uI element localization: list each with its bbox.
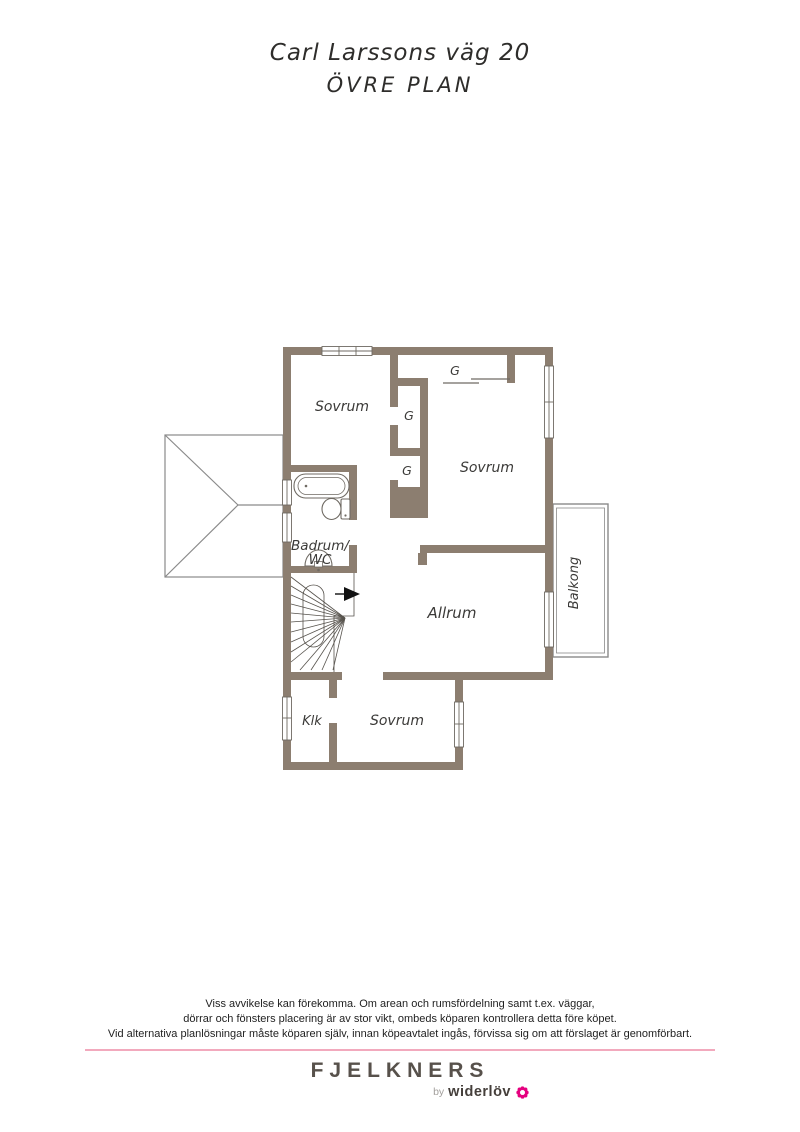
window-sovrum-bottom — [455, 702, 464, 747]
roof-rect — [165, 435, 283, 577]
stair-direction-arrow — [335, 587, 360, 601]
wall-stair-bottom — [283, 672, 342, 680]
pink-divider-rule — [85, 1049, 715, 1051]
sliding-closet-doors — [443, 379, 510, 383]
wall-klk-divider-upper — [329, 680, 337, 698]
closet-label-g2: G — [404, 408, 414, 423]
room-label-klk: Klk — [302, 714, 322, 729]
wall-exterior-bottom — [283, 762, 463, 770]
balcony-door — [545, 592, 554, 647]
wall-klk-divider-lower — [329, 723, 337, 762]
brand-name: FJELKNERS — [311, 1059, 490, 1083]
disclaimer-line-3: Vid alternativa planlösningar måste köpa… — [0, 1027, 800, 1042]
closet-label-g1: G — [450, 363, 460, 378]
widerlov-flower-icon — [515, 1085, 530, 1100]
room-label-balkong: Balkong — [567, 557, 582, 609]
byline-brand: widerlöv — [448, 1084, 511, 1100]
bathtub — [294, 474, 349, 498]
floor-plan: Sovrum Sovrum Allrum Sovrum Klk Badrum/ … — [0, 0, 800, 1132]
chimney-block — [390, 487, 425, 518]
room-label-sovrum-top-right: Sovrum — [460, 460, 514, 476]
window-badrum-upper — [283, 480, 292, 505]
wall-closet-right — [420, 382, 428, 518]
disclaimer-line-1: Viss avvikelse kan förekomma. Om arean o… — [0, 997, 800, 1012]
room-label-sovrum-bottom: Sovrum — [370, 713, 424, 729]
wall-closet-top-stub — [395, 378, 428, 386]
byline-prefix: by — [433, 1086, 444, 1098]
broker-logo: FJELKNERS by widerlöv — [0, 1059, 800, 1100]
closet-label-g3: G — [402, 463, 412, 478]
room-label-allrum: Allrum — [427, 604, 477, 622]
roof-outline — [165, 435, 283, 577]
wall-allrum-bottom — [383, 672, 553, 680]
brand-byline: by widerlöv — [354, 1084, 530, 1100]
wall-closet-left-c — [390, 480, 398, 487]
wall-closet-mid-stub — [390, 448, 420, 456]
stair-treads — [291, 577, 345, 670]
window-right-sovrum — [545, 366, 554, 438]
page: Carl Larssons väg 20 ÖVRE PLAN — [0, 0, 800, 1132]
room-label-sovrum-top-left: Sovrum — [315, 399, 369, 415]
wall-sovrum-allrum-divider — [420, 545, 545, 553]
disclaimer: Viss avvikelse kan förekomma. Om arean o… — [0, 997, 800, 1042]
window-klk — [283, 697, 292, 740]
window-top-sovrum — [322, 347, 372, 356]
wall-divider-stub — [418, 553, 427, 565]
room-label-badrum-line2: WC — [309, 552, 332, 568]
wall-badrum-top — [291, 465, 357, 472]
toilet — [322, 499, 350, 520]
disclaimer-line-2: dörrar och fönsters placering är av stor… — [0, 1012, 800, 1027]
